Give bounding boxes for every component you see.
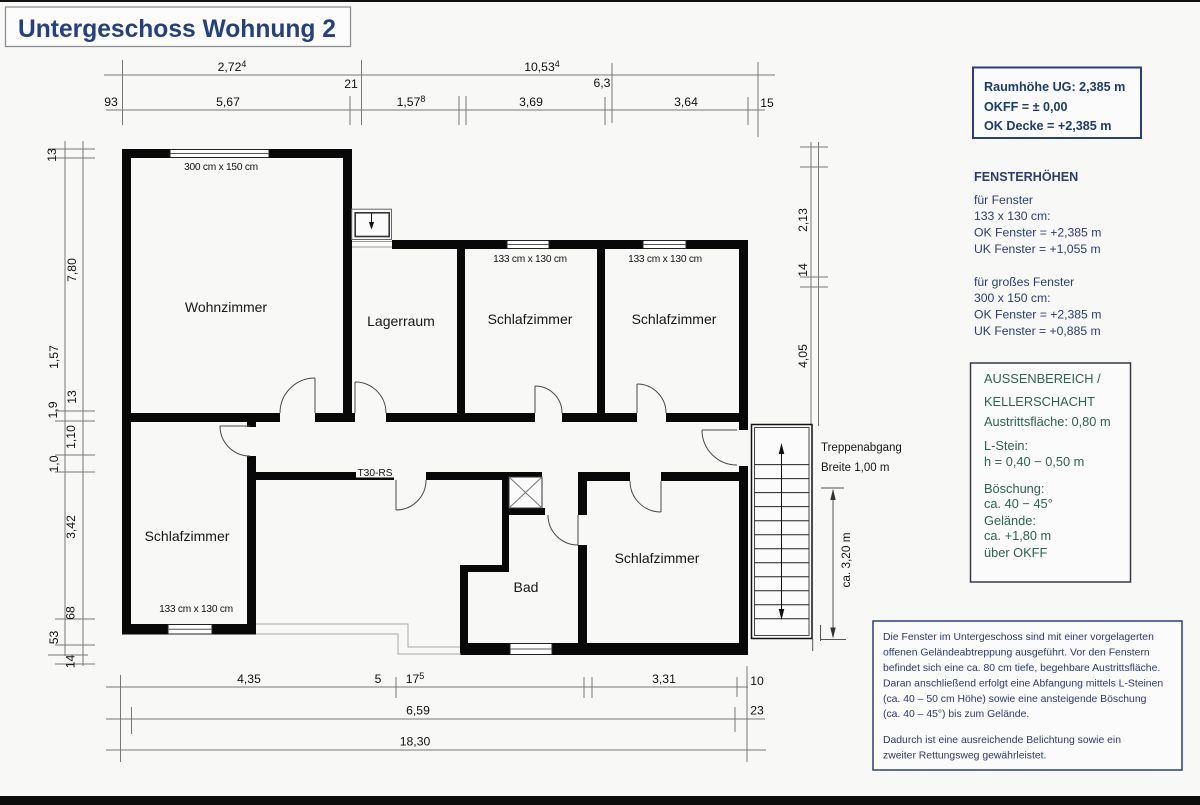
svg-text:OK Fenster = +2,385 m: OK Fenster = +2,385 m <box>974 308 1101 322</box>
svg-text:(ca. 40 – 45°) bis zum Gelände: (ca. 40 – 45°) bis zum Gelände. <box>883 709 1029 720</box>
svg-text:5,67: 5,67 <box>216 95 240 109</box>
svg-text:Austrittsfläche: 0,80 m: Austrittsfläche: 0,80 m <box>984 414 1111 429</box>
svg-text:befindet sich eine ca. 80 cm t: befindet sich eine ca. 80 cm tiefe, bege… <box>883 663 1160 674</box>
svg-text:OK Fenster = +2,385 m: OK Fenster = +2,385 m <box>974 226 1101 240</box>
svg-text:5: 5 <box>375 672 382 686</box>
svg-text:ca. 3,20 m: ca. 3,20 m <box>839 532 853 587</box>
svg-text:Raumhöhe UG: 2,385 m: Raumhöhe UG: 2,385 m <box>984 80 1125 94</box>
svg-text:Lagerraum: Lagerraum <box>367 313 435 329</box>
svg-text:133 x 130 cm:: 133 x 130 cm: <box>974 209 1051 223</box>
svg-text:für großes Fenster: für großes Fenster <box>974 275 1074 289</box>
svg-text:AUSSENBEREICH /: AUSSENBEREICH / <box>984 371 1101 386</box>
svg-text:6,3: 6,3 <box>594 76 611 90</box>
svg-text:h = 0,40 − 0,50 m: h = 0,40 − 0,50 m <box>984 454 1084 469</box>
svg-text:15: 15 <box>760 96 774 110</box>
svg-text:zweiter Rettungsweg gewährleis: zweiter Rettungsweg gewährleistet. <box>883 751 1046 762</box>
svg-text:1,9: 1,9 <box>46 401 60 418</box>
svg-text:14: 14 <box>796 263 810 277</box>
svg-text:Schlafzimmer: Schlafzimmer <box>632 311 717 327</box>
svg-text:(ca. 40 – 50 cm Höhe) sowie ei: (ca. 40 – 50 cm Höhe) sowie eine ansteig… <box>883 694 1147 705</box>
svg-text:2,13: 2,13 <box>796 208 810 232</box>
svg-text:L-Stein:: L-Stein: <box>984 438 1028 453</box>
svg-text:300 cm x 150 cm: 300 cm x 150 cm <box>184 162 258 173</box>
svg-text:93: 93 <box>104 95 118 109</box>
svg-text:133 cm x 130 cm: 133 cm x 130 cm <box>159 604 233 615</box>
svg-text:offenen Geländeabtreppung ausg: offenen Geländeabtreppung ausgeführt. Vo… <box>883 648 1150 659</box>
svg-text:Bad: Bad <box>514 579 539 595</box>
svg-text:3,69: 3,69 <box>519 95 543 109</box>
svg-text:23: 23 <box>750 704 764 718</box>
svg-text:FENSTERHÖHEN: FENSTERHÖHEN <box>974 169 1078 184</box>
svg-text:Breite 1,00 m: Breite 1,00 m <box>821 462 889 474</box>
svg-text:Schlafzimmer: Schlafzimmer <box>488 311 573 327</box>
svg-text:13: 13 <box>45 148 59 162</box>
svg-text:Untergeschoss Wohnung 2: Untergeschoss Wohnung 2 <box>18 16 336 43</box>
svg-text:Die Fenster im Untergeschoss s: Die Fenster im Untergeschoss sind mit ei… <box>883 632 1154 643</box>
svg-text:53: 53 <box>47 631 61 645</box>
svg-text:ca. +1,80 m: ca. +1,80 m <box>984 528 1051 543</box>
svg-text:OK Decke = +2,385 m: OK Decke = +2,385 m <box>984 119 1111 133</box>
svg-text:Wohnzimmer: Wohnzimmer <box>185 299 268 315</box>
svg-text:über OKFF: über OKFF <box>984 545 1047 560</box>
svg-text:300 x 150 cm:: 300 x 150 cm: <box>974 291 1051 305</box>
svg-text:3,64: 3,64 <box>674 95 698 109</box>
svg-text:Treppenabgang: Treppenabgang <box>821 442 902 454</box>
svg-text:T30-RS: T30-RS <box>357 468 392 479</box>
svg-text:4,35: 4,35 <box>237 672 261 686</box>
svg-text:Schlafzimmer: Schlafzimmer <box>615 550 700 566</box>
svg-text:6,59: 6,59 <box>406 704 430 718</box>
svg-text:Schlafzimmer: Schlafzimmer <box>145 528 230 544</box>
svg-text:Daran anschließend erfolgt ein: Daran anschließend erfolgt eine Abfangun… <box>883 679 1163 690</box>
svg-text:Gelände:: Gelände: <box>984 513 1036 528</box>
svg-text:18,30: 18,30 <box>400 735 431 749</box>
svg-text:133 cm x 130 cm: 133 cm x 130 cm <box>493 254 567 265</box>
svg-text:10: 10 <box>750 674 764 688</box>
svg-text:3,42: 3,42 <box>64 515 78 539</box>
svg-text:KELLERSCHACHT: KELLERSCHACHT <box>984 394 1095 409</box>
svg-text:3,31: 3,31 <box>652 672 676 686</box>
svg-text:4,05: 4,05 <box>796 344 810 368</box>
svg-text:1,10: 1,10 <box>64 425 78 449</box>
svg-text:für Fenster: für Fenster <box>974 193 1033 207</box>
svg-text:21: 21 <box>344 77 358 91</box>
svg-text:1,0: 1,0 <box>47 455 61 472</box>
svg-text:68: 68 <box>64 606 78 620</box>
svg-text:UK Fenster = +1,055 m: UK Fenster = +1,055 m <box>974 242 1101 256</box>
svg-text:Dadurch ist eine ausreichende: Dadurch ist eine ausreichende Belichtung… <box>883 735 1121 746</box>
svg-text:13: 13 <box>65 390 79 404</box>
svg-text:ca. 40 − 45°: ca. 40 − 45° <box>984 496 1053 511</box>
svg-text:7,80: 7,80 <box>65 258 79 282</box>
svg-text:UK Fenster = +0,885 m: UK Fenster = +0,885 m <box>974 324 1101 338</box>
svg-text:133 cm x 130 cm: 133 cm x 130 cm <box>628 254 702 265</box>
svg-text:1,57: 1,57 <box>47 345 61 369</box>
svg-text:10,534: 10,534 <box>524 59 560 74</box>
svg-text:14: 14 <box>64 655 78 669</box>
svg-text:OKFF = ± 0,00: OKFF = ± 0,00 <box>984 100 1068 114</box>
svg-text:Böschung:: Böschung: <box>984 481 1044 496</box>
